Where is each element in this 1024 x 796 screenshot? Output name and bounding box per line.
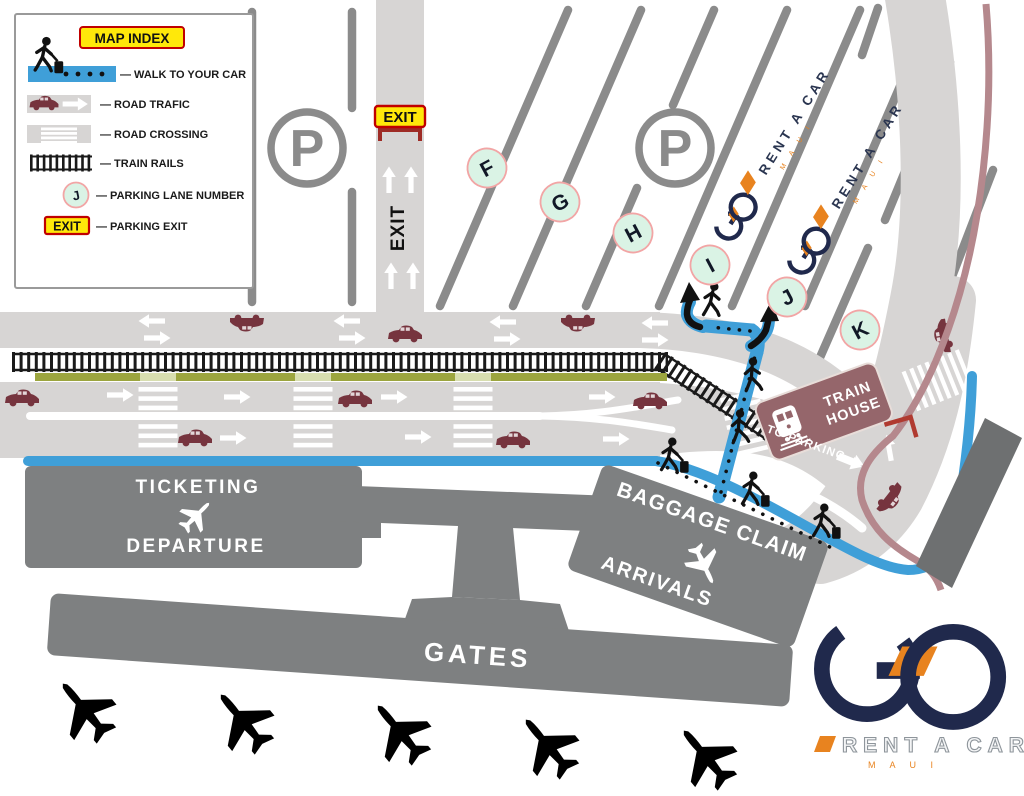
exit-road-label: EXIT bbox=[388, 205, 409, 251]
legend-panel: MAP INDEX — WALK TO YOUR CAR — ROAD TRAF… bbox=[15, 14, 253, 288]
airport-rental-map: P P EXIT EXIT bbox=[0, 0, 1024, 796]
legend-label: — ROAD TRAFIC bbox=[100, 99, 190, 111]
baggage-claim-building: BAGGAGE CLAIM ARRIVALS bbox=[566, 463, 830, 649]
parking-lane-lines bbox=[252, 8, 993, 362]
go-logo-icon bbox=[822, 624, 998, 722]
exit-sign-label: EXIT bbox=[383, 109, 416, 126]
upper-road bbox=[0, 312, 660, 348]
airplane-icon bbox=[663, 713, 749, 796]
legend-title: MAP INDEX bbox=[95, 31, 170, 46]
airplane-icon bbox=[357, 688, 443, 775]
go-logo-icon bbox=[785, 223, 834, 279]
parking-symbol-right: P bbox=[639, 112, 711, 184]
ticketing-label: TICKETING bbox=[136, 477, 261, 498]
brand-diamond-icon bbox=[737, 170, 759, 195]
legend-exit-badge: EXIT bbox=[53, 220, 81, 234]
legend-label: — WALK TO YOUR CAR bbox=[120, 69, 246, 81]
legend-title-chip: MAP INDEX bbox=[80, 27, 184, 48]
brand-sub: M A U I bbox=[868, 760, 939, 770]
legend-label: — TRAIN RAILS bbox=[100, 158, 184, 170]
brand-name: RENT A CAR bbox=[842, 734, 1024, 757]
olive-strip bbox=[35, 373, 667, 381]
airplane-icon bbox=[200, 677, 286, 764]
legend-label: — ROAD CROSSING bbox=[100, 129, 208, 141]
legend-label: — PARKING LANE NUMBER bbox=[96, 190, 244, 202]
airplane-icon bbox=[42, 666, 128, 753]
parking-symbol-letter: P bbox=[290, 120, 325, 178]
departure-label: DEPARTURE bbox=[126, 536, 265, 557]
parking-symbol-letter: P bbox=[658, 120, 693, 178]
airplane-icon bbox=[505, 702, 591, 789]
legend-label: — PARKING EXIT bbox=[96, 221, 188, 233]
ticketing-building: TICKETING DEPARTURE bbox=[25, 466, 381, 568]
brand-diamond-icon bbox=[814, 736, 836, 752]
walker-icon bbox=[703, 283, 719, 316]
go-logo-icon bbox=[712, 189, 761, 245]
parking-symbol-left: P bbox=[271, 112, 343, 184]
parking-exit-sign: EXIT bbox=[375, 106, 425, 127]
brand-diamond-icon bbox=[810, 204, 832, 229]
terminal-stem bbox=[452, 514, 520, 600]
exit-road: EXIT EXIT bbox=[375, 0, 425, 314]
brand-logo-main: RENT A CAR M A U I bbox=[814, 624, 1024, 770]
map-canvas: P P EXIT EXIT bbox=[0, 0, 1024, 796]
